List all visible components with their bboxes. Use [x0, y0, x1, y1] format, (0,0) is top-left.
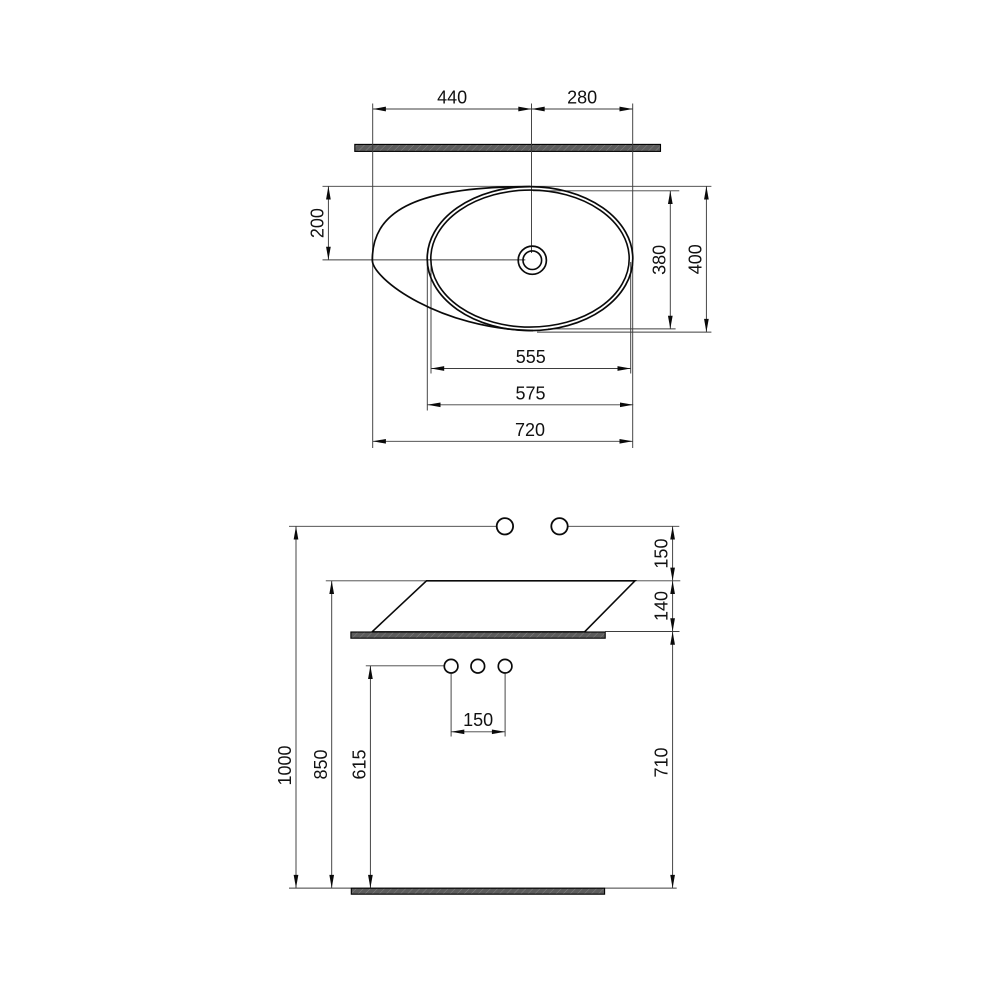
svg-text:575: 575 [515, 384, 545, 404]
svg-text:150: 150 [652, 539, 672, 569]
svg-text:615: 615 [350, 749, 370, 779]
svg-text:280: 280 [567, 88, 597, 108]
svg-text:200: 200 [308, 208, 328, 238]
svg-text:1000: 1000 [275, 745, 295, 785]
svg-text:380: 380 [649, 245, 669, 275]
svg-text:555: 555 [516, 347, 546, 367]
svg-text:440: 440 [437, 88, 467, 108]
svg-text:850: 850 [311, 749, 331, 779]
svg-text:400: 400 [686, 244, 706, 274]
svg-text:150: 150 [463, 710, 493, 730]
svg-text:140: 140 [652, 591, 672, 621]
svg-text:720: 720 [515, 420, 545, 440]
svg-text:710: 710 [652, 747, 672, 777]
